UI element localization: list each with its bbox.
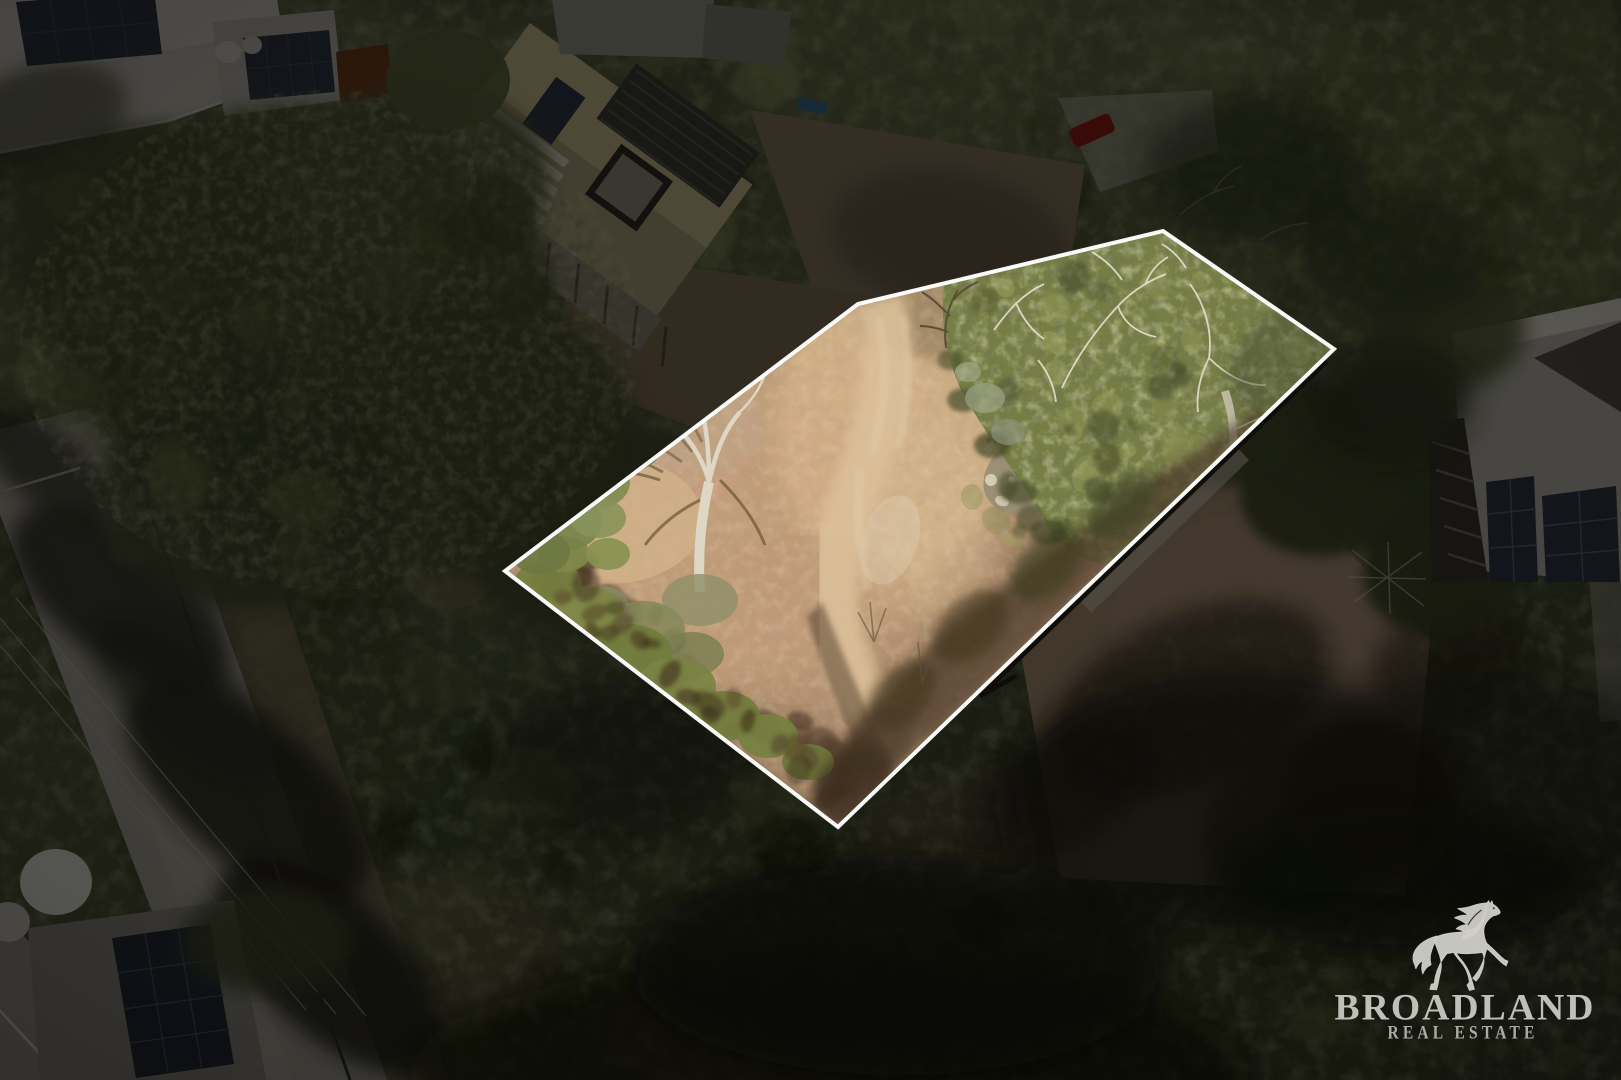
svg-text:REAL ESTATE: REAL ESTATE <box>1388 1024 1539 1044</box>
svg-text:BROADLAND: BROADLAND <box>1335 988 1596 1029</box>
